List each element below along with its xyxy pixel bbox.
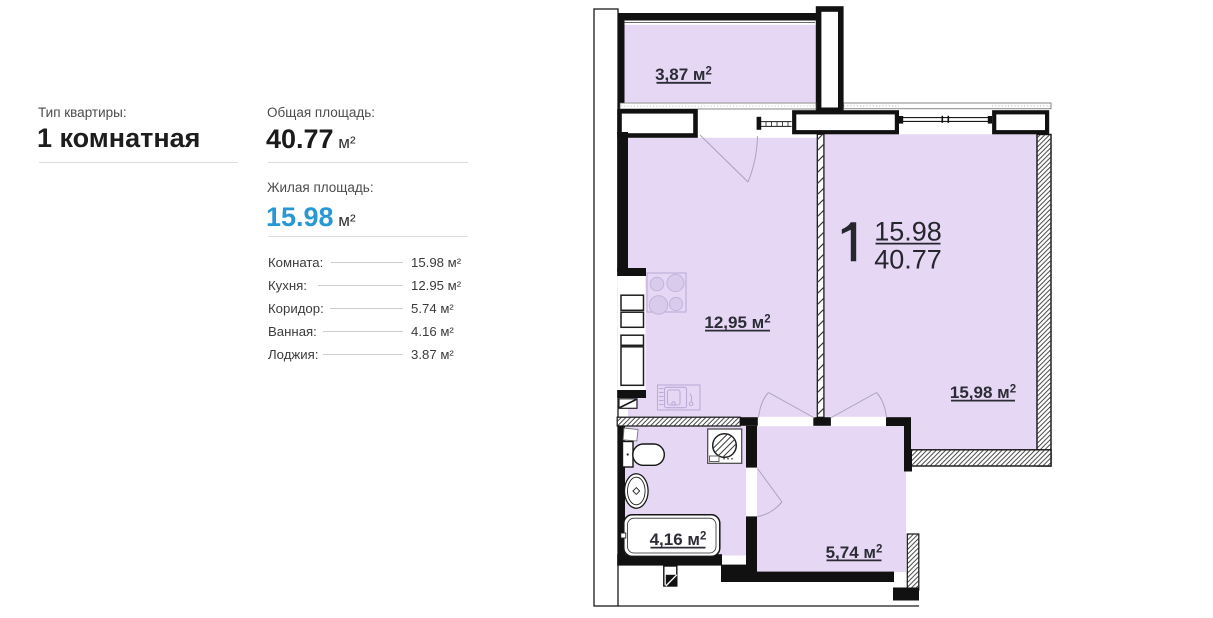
svg-text:15.98: 15.98 bbox=[874, 217, 942, 247]
svg-text:12,95 м2: 12,95 м2 bbox=[704, 313, 770, 332]
svg-text:40.77: 40.77 bbox=[874, 245, 942, 275]
svg-text:3,87 м2: 3,87 м2 bbox=[655, 65, 712, 84]
svg-text:5,74 м2: 5,74 м2 bbox=[826, 543, 883, 562]
svg-text:15,98 м2: 15,98 м2 bbox=[950, 383, 1016, 402]
svg-text:4,16 м2: 4,16 м2 bbox=[650, 530, 707, 549]
